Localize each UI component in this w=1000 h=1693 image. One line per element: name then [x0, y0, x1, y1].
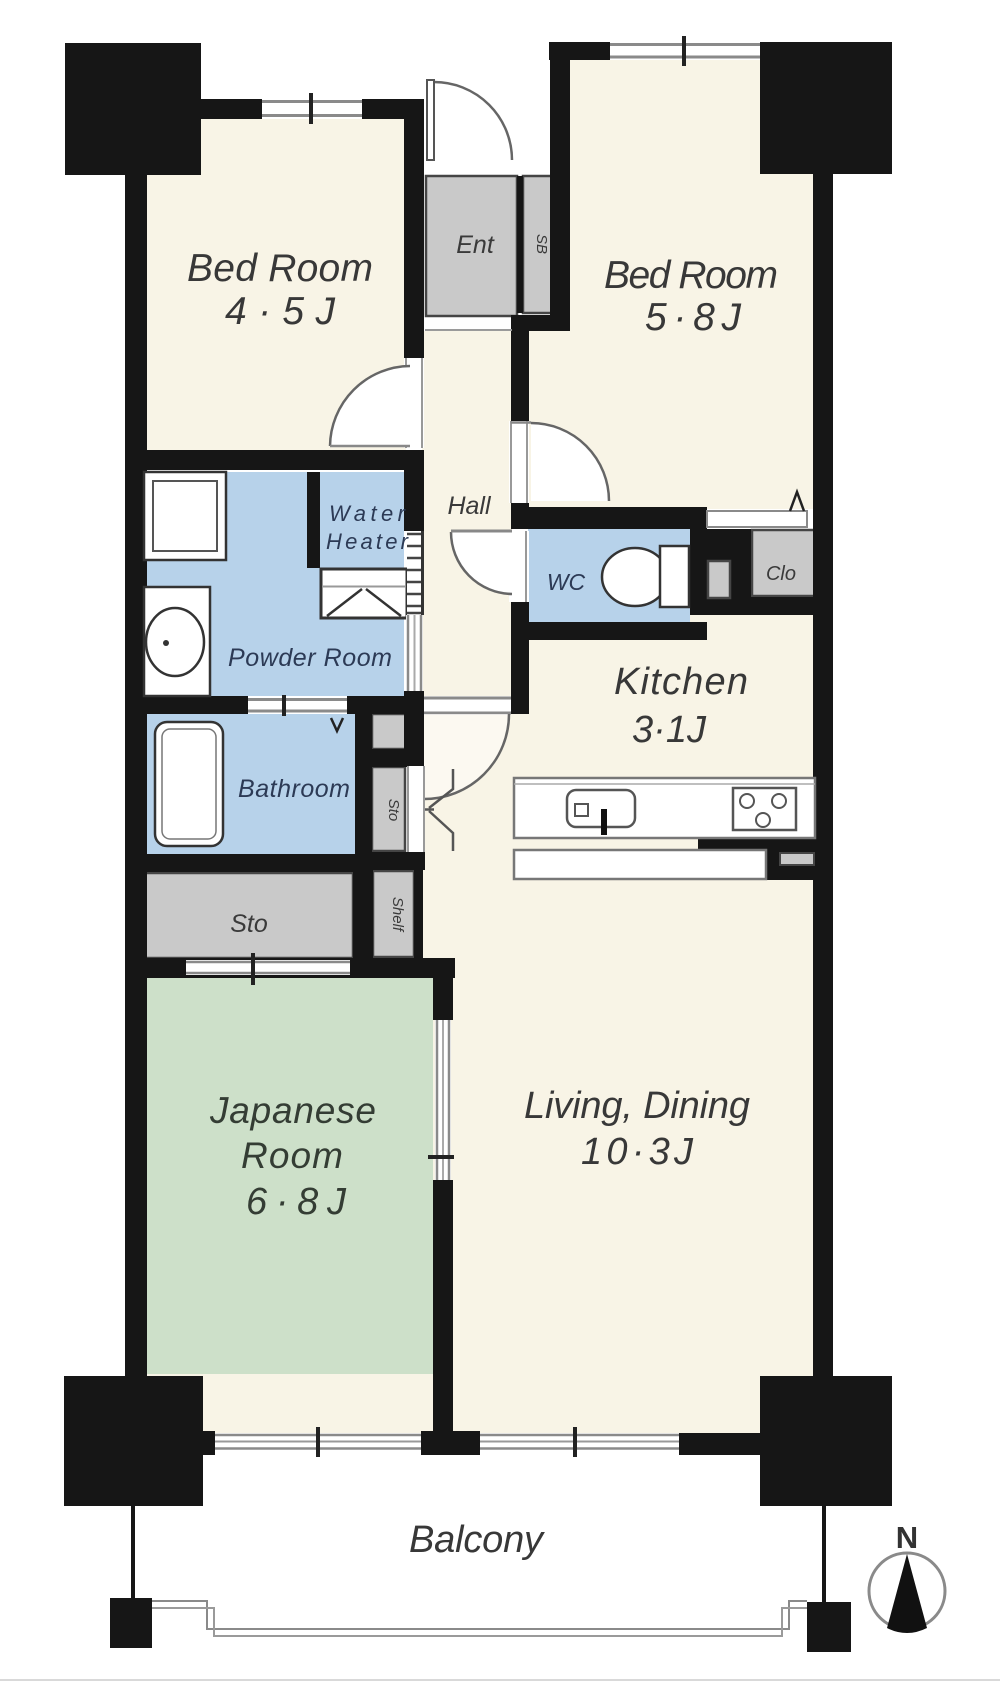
svg-text:Powder Room: Powder Room [228, 644, 392, 672]
svg-text:Sto: Sto [385, 799, 402, 822]
svg-text:3·1J: 3·1J [632, 709, 707, 751]
svg-text:Room: Room [241, 1135, 343, 1176]
svg-text:Bed Room: Bed Room [604, 254, 778, 297]
svg-text:Heater: Heater [326, 529, 410, 554]
svg-text:10·3J: 10·3J [581, 1131, 694, 1173]
svg-text:SB: SB [533, 234, 550, 254]
svg-text:Bathroom: Bathroom [238, 775, 350, 803]
svg-text:Clo: Clo [766, 563, 796, 585]
svg-text:Japanese: Japanese [209, 1090, 376, 1131]
svg-text:Ent: Ent [456, 231, 495, 259]
svg-text:Shelf: Shelf [389, 897, 406, 933]
svg-text:Balcony: Balcony [409, 1519, 545, 1561]
svg-text:Living, Dining: Living, Dining [524, 1085, 750, 1127]
svg-text:WC: WC [547, 569, 586, 595]
svg-text:Bed Room: Bed Room [187, 247, 373, 290]
svg-text:Sto: Sto [230, 910, 268, 938]
svg-text:6·8J: 6·8J [246, 1181, 347, 1223]
svg-text:N: N [896, 1520, 918, 1555]
svg-text:5·8J: 5·8J [645, 296, 742, 339]
svg-text:Hall: Hall [447, 492, 492, 520]
